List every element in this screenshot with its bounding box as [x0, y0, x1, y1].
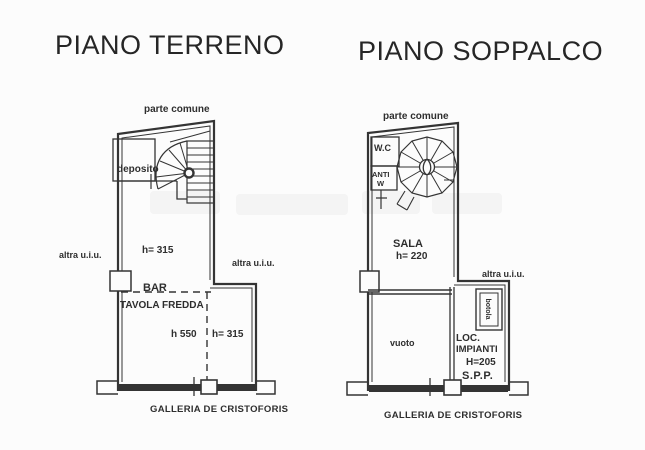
label-street-right: GALLERIA DE CRISTOFORIS [384, 410, 522, 421]
scan-page: PIANO TERRENO PIANO SOPPALCO [0, 0, 645, 450]
label-botola: botola [484, 299, 491, 320]
entrance-door-post-right [444, 380, 461, 395]
botola-hatch: botola [476, 289, 502, 330]
left-plan: parte comune deposito h= 315 BAR TAVOLA … [59, 104, 288, 415]
label-h-550: h 550 [171, 329, 197, 340]
staircase-winder-fan [156, 131, 210, 189]
label-anti-w: W [377, 179, 385, 188]
label-altra-uiu-left: altra u.i.u. [59, 250, 102, 260]
sala-vuoto-divider-wall [368, 290, 452, 294]
label-altra-uiu-right: altra u.i.u. [232, 258, 275, 268]
vuoto-impianti-wall [450, 287, 454, 385]
label-wc: W.C [374, 143, 391, 153]
label-street-left: GALLERIA DE CRISTOFORIS [150, 404, 288, 415]
label-bar: BAR [143, 282, 167, 294]
left-plan-wall-foot-left [97, 381, 118, 394]
entrance-door-tick-right [424, 378, 436, 396]
label-sala: SALA [393, 238, 423, 250]
right-plan-shopfront-wall [369, 385, 508, 392]
right-plan-wall-foot-right [509, 382, 528, 395]
floorplan-canvas: parte comune deposito h= 315 BAR TAVOLA … [0, 0, 645, 450]
right-plan-wall-foot-left [347, 382, 368, 395]
label-parte-comune-right: parte comune [383, 111, 449, 122]
label-h-205: H=205 [466, 357, 496, 368]
right-plan-pilaster [360, 271, 379, 292]
label-h-220: h= 220 [396, 251, 428, 262]
left-plan-pilaster [110, 271, 131, 291]
label-impianti: IMPIANTI [456, 344, 498, 355]
stair-newel-post [185, 169, 194, 178]
label-spp: S.P.P. [462, 370, 493, 382]
label-h-315-lower: h= 315 [212, 329, 244, 340]
entrance-door-post [201, 380, 217, 394]
entrance-door-tick [188, 377, 200, 396]
label-h-315-upper: h= 315 [142, 245, 174, 256]
label-altra-uiu-right-plan: altra u.i.u. [482, 269, 525, 279]
right-plan: botola parte comune W.C ANTI W SALA h= 2… [347, 111, 528, 421]
label-tavola-fredda: TAVOLA FREDDA [120, 300, 204, 311]
label-vuoto: vuoto [390, 338, 415, 348]
left-plan-shopfront-wall [119, 384, 256, 391]
label-anti: ANTI [372, 170, 390, 179]
label-loc: LOC. [456, 333, 480, 344]
label-parte-comune-left: parte comune [144, 104, 210, 115]
left-plan-wall-foot-right [256, 381, 275, 394]
label-deposito: deposito [117, 164, 159, 175]
